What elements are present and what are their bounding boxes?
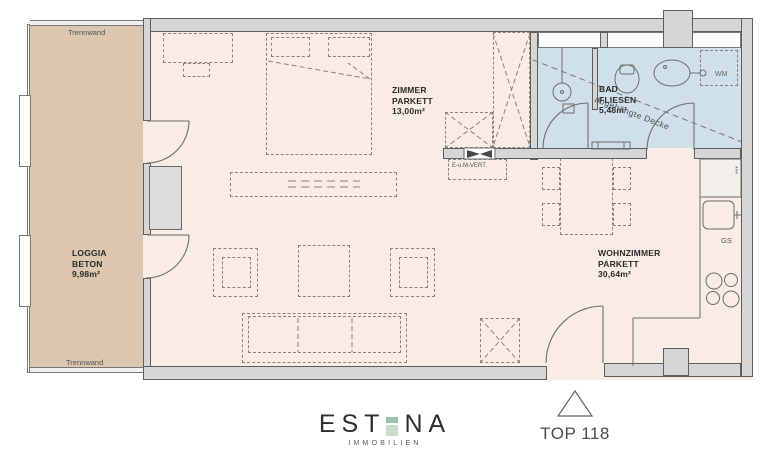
- railing-panel-lower: [19, 235, 31, 307]
- dining-table: [560, 158, 613, 235]
- wall-loggia-upper: [143, 18, 151, 121]
- entry-wardrobe: [480, 318, 520, 363]
- unit-triangle-icon: [555, 389, 595, 418]
- loggia-name: LOGGIA: [72, 248, 107, 259]
- loggia-area: 9,98m²: [72, 269, 107, 280]
- floorplan-canvas: *** Trennwand Trennwand LOGGIA BETON 9,9…: [0, 0, 770, 452]
- wohnzimmer-floor: PARKETT: [598, 259, 660, 270]
- wall-bath-bottom-right: [694, 148, 741, 159]
- dining-chair-4: [613, 203, 631, 226]
- brand-subtitle: IMMOBILIEN: [300, 440, 470, 447]
- trennwand-bottom-label: Trennwand: [66, 358, 103, 367]
- armchair-right-cushion: [399, 257, 428, 288]
- unit-number: TOP 118: [520, 424, 630, 444]
- brand-i-body: [386, 425, 398, 436]
- loggia-fixed-element: [149, 166, 182, 230]
- washing-machine-box: [700, 50, 738, 86]
- room-label-loggia: LOGGIA BETON 9,98m²: [72, 248, 107, 280]
- dining-chair-3: [613, 167, 631, 190]
- pillow-right: [328, 37, 370, 57]
- wohnzimmer-area: 30,64m²: [598, 269, 660, 280]
- loggia-floor: [30, 24, 143, 373]
- shaft-pillar: [663, 10, 693, 48]
- trennwand-top-label: Trennwand: [68, 28, 105, 37]
- trennwand-wall-top: [30, 20, 143, 26]
- shaft-window: [538, 32, 741, 48]
- brand-left: EST: [319, 412, 386, 437]
- wardrobe-strip: [493, 32, 530, 148]
- wall-right: [741, 18, 753, 377]
- brand-i-dot: [386, 417, 398, 423]
- dining-chair-1: [542, 167, 560, 190]
- desk-chair: [183, 63, 210, 77]
- sideboard: [230, 172, 397, 197]
- loggia-railing: [27, 24, 30, 373]
- room-label-wohnzimmer: WOHNZIMMER PARKETT 30,64m²: [598, 248, 660, 280]
- column: [663, 348, 689, 376]
- gs-label: GS: [721, 236, 732, 245]
- pillow-left: [271, 37, 310, 57]
- wohnzimmer-name: WOHNZIMMER: [598, 248, 660, 259]
- wall-bath-left: [530, 32, 538, 160]
- wall-loggia-lower: [143, 278, 151, 367]
- zimmer-area: 13,00m²: [392, 106, 433, 117]
- desk: [163, 33, 233, 63]
- coffee-table: [298, 245, 350, 297]
- sofa-seat: [248, 316, 401, 353]
- shaft-mullion: [600, 32, 608, 48]
- em-vert-label: E-u.M-VERT.: [452, 163, 487, 169]
- bad-name: BAD: [599, 84, 636, 95]
- estina-wordmark: EST NA: [300, 412, 470, 437]
- railing-panel-upper: [19, 95, 31, 167]
- unit-marker: TOP 118: [520, 389, 630, 444]
- dining-chair-2: [542, 203, 560, 226]
- wall-bottom-left: [143, 366, 547, 380]
- zimmer-name: ZIMMER: [392, 85, 433, 96]
- zimmer-floor: PARKETT: [392, 96, 433, 107]
- estina-logo: EST NA IMMOBILIEN: [300, 412, 470, 447]
- wm-label: WM: [715, 71, 727, 78]
- room-label-zimmer: ZIMMER PARKETT 13,00m²: [392, 85, 433, 117]
- wall-bath-bottom-left: [443, 148, 647, 159]
- armchair-left-cushion: [222, 257, 251, 288]
- loggia-floor: BETON: [72, 259, 107, 270]
- wardrobe-box: [445, 112, 493, 148]
- brand-right: NA: [404, 412, 451, 437]
- trennwand-wall-bottom: [30, 367, 143, 373]
- brand-i-icon: [386, 417, 398, 436]
